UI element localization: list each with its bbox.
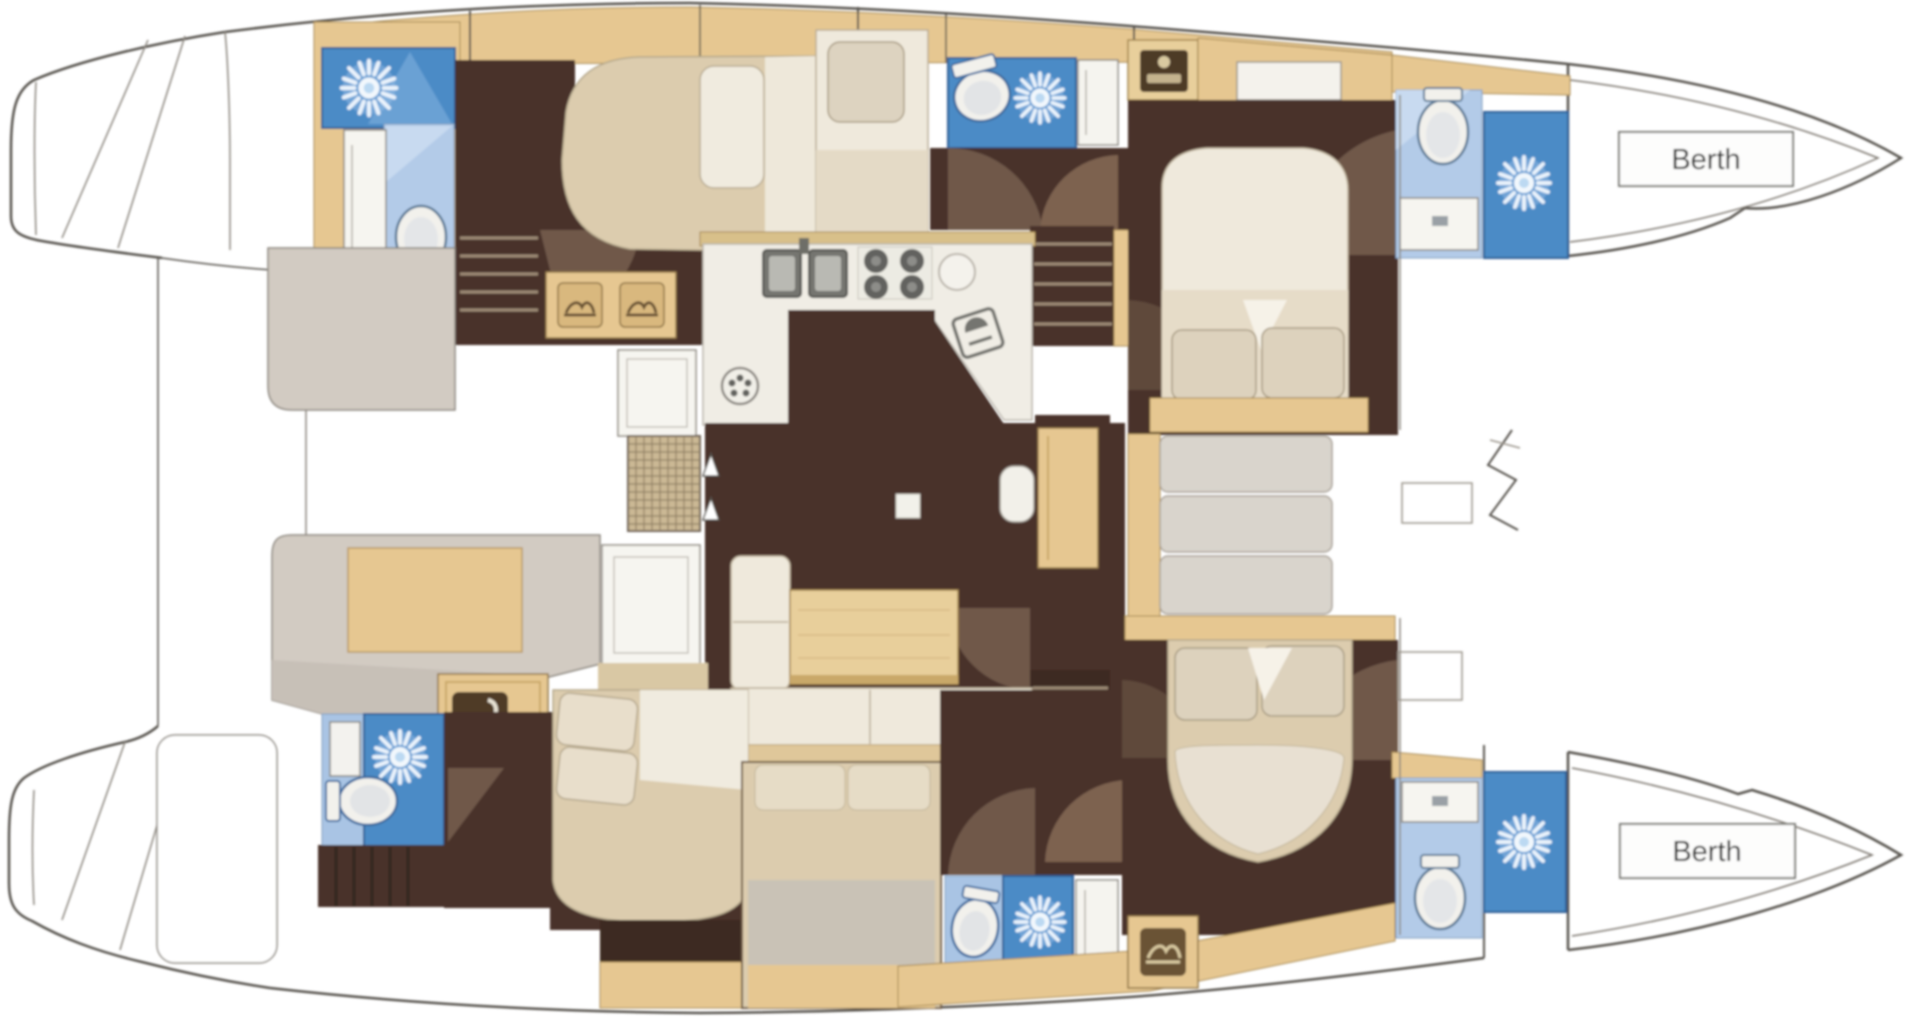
svg-text:Berth: Berth	[1672, 836, 1741, 868]
svg-text:Berth: Berth	[1671, 144, 1740, 176]
